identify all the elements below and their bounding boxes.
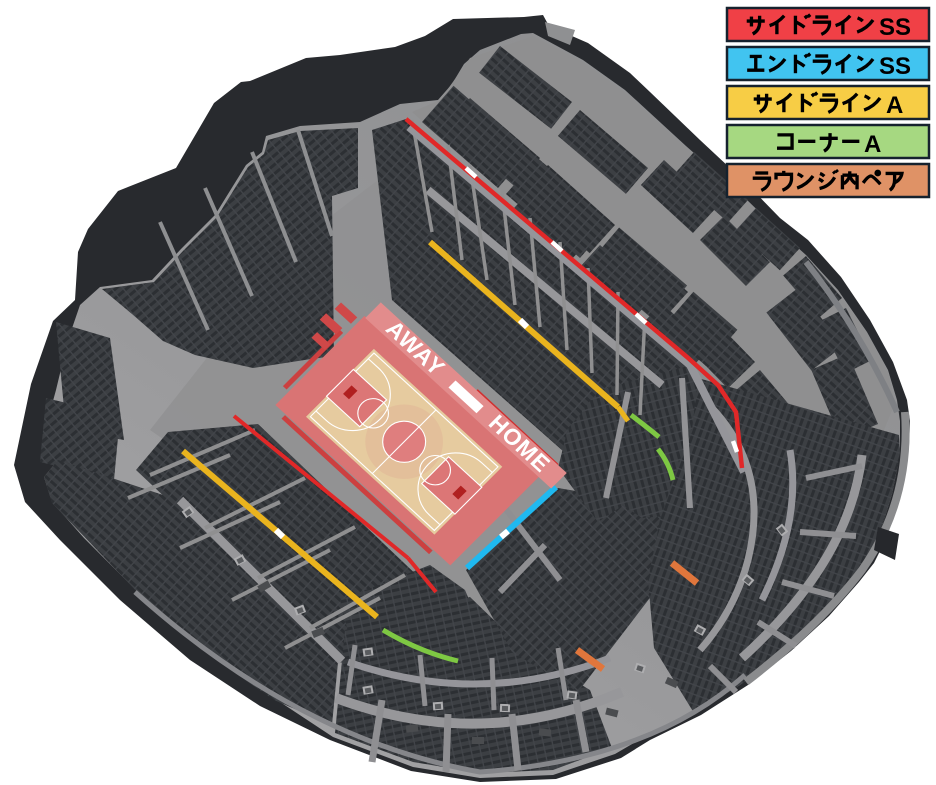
svg-text:SS: SS	[879, 14, 911, 41]
svg-text:A: A	[864, 131, 881, 158]
svg-text:A: A	[886, 92, 903, 119]
svg-text:SS: SS	[879, 53, 911, 80]
